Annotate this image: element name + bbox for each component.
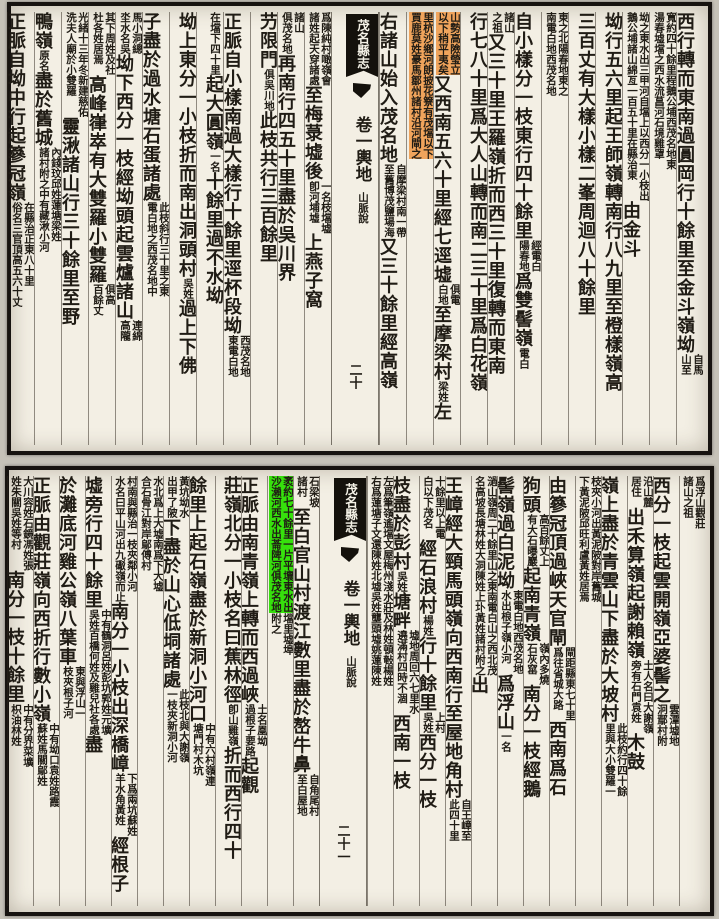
interlinear-annotation: 自角尾村至白屋地 — [295, 774, 319, 816]
text-column: 里杭沙鄉河朗披花簝有茂壋以下買鹿莫姓豪馬鄒州諸村沿河閘之 — [406, 12, 433, 445]
section-label: 山脈說 — [344, 656, 356, 688]
annotation-line: 上村 — [433, 712, 445, 733]
column-main-text: 狗頭 — [523, 476, 541, 514]
annotation-line: 吳姓百橋何姓及雞兒社各處 — [87, 609, 99, 735]
column-main-text: 出 — [471, 676, 489, 695]
annotation-line: 水北爲上大墟南爲下大墟 — [151, 476, 163, 592]
interlinear-annotation: 楊姓 — [421, 615, 433, 636]
annotation-line: 經電白 — [529, 240, 541, 272]
column-main-text: 正脈由南青嶺上轉而西過峽 — [241, 476, 259, 704]
annotation-line: 西茂名地 — [238, 335, 250, 377]
column-main-text: 子盡於過水塘石蛋諸處 — [142, 12, 161, 202]
interlinear-annotation: 枝夾小河出黃泥陂對岸舊城下黃泥陂邱旺利盧黃姓居焉 — [577, 476, 601, 602]
annotation-line: 梁姓 — [436, 381, 448, 402]
annotation-line: 至白屋地 — [295, 774, 307, 816]
text-column: 石梁坡諸村至白官山村渡江數里盡於嶅牛鼻自角尾村至白屋地 — [293, 476, 319, 906]
annotation-line: 雲潭墟地 — [667, 704, 679, 746]
text-column: 諸山俱茂名地再南行四五十里盡於吳川界 — [277, 12, 304, 445]
interlinear-annotation: 爲浮山觀莊諸山之祖 — [681, 476, 705, 529]
interlinear-annotation: 中有分界菜壙枳油林姓 — [9, 704, 33, 767]
scanned-page-bottom: 爲浮山觀莊諸山之祖西分一枝起雲開嶺亞婆髻之雲潭墟地泂鄢村附沿山麓居住出禾算嶺起謝… — [5, 466, 714, 916]
annotation-line: 山至 — [679, 354, 691, 375]
recto-half: 西行轉而東南過圓岡行十餘里至金斗嶺坳自馬山至寬約四十餘里程鵝公埔西茂名地東湯春墟… — [379, 12, 703, 445]
annotation-line: 內錢玟邱姓蓮塘梁姓 — [49, 147, 61, 252]
interlinear-annotation: 水北爲上大墟南爲下大墟合石骨江對岸鄔傅村 — [139, 476, 163, 592]
column-main-text: 由金斗 — [622, 201, 641, 258]
interlinear-annotation: 俱吳川地 — [262, 69, 274, 111]
interlinear-annotation: 一名 — [208, 151, 220, 172]
annotation-line: 吳姓 — [421, 712, 433, 733]
annotation-line: 爲浮山觀莊 — [693, 476, 705, 529]
annotation-line: 山勢高險瑩立 — [448, 12, 460, 75]
interlinear-annotation: 原名 — [37, 50, 49, 71]
text-column: 十餘里以上電白以下茂名經石浪村楊姓行十餘里上村吳姓西分一枝 — [419, 476, 445, 906]
annotation-line: 一名 — [499, 731, 511, 752]
annotation-line: 過根子要路 — [243, 704, 255, 757]
annotation-line: 姓朱關吳姓等村 — [9, 476, 21, 571]
annotation-line: 爲陳純村噉嶺會 — [319, 12, 331, 86]
interlinear-annotation: 濄山嶺周二十餘里山之東南電白山之西北茂名高坡長塘林姓大洞陳姓上圤黃姓諸村附之 — [473, 476, 497, 676]
annotation-line: 光緒十三年冬新建慈佑 — [76, 12, 88, 117]
text-column: 大川容姓石鏡馮姓張姓朱關吳姓等村南分一枝十餘里中有分界菜壙枳油林姓 — [7, 476, 33, 906]
column-main-text: 盡 — [85, 735, 103, 754]
column-main-text: 塘畔 — [393, 592, 411, 630]
annotation-line: 白以下茂名 — [421, 476, 433, 539]
annotation-line: 旁有石門袁姓 — [629, 660, 641, 734]
annotation-line: 俱高 — [103, 284, 115, 316]
column-main-text: 墟旁行四十餘里 — [85, 476, 103, 609]
column-main-text: 又三十餘里經高嶺 — [379, 238, 398, 390]
text-column: 諸山之祖又三十里王羅嶺折而西三十里復轉而東南 — [487, 12, 514, 445]
text-column: 由篸冠頂過峽天官閘閘距縣東七十里爲往省城大路西南爲石 — [549, 476, 575, 906]
column-main-text: 右諸山始入茂名地 — [379, 12, 398, 164]
text-column: 嶺上盡於青雲山下盡於大坡村此枝約行四十餘里與大小雙羅一 — [601, 476, 627, 906]
interlinear-annotation: 墟地周回六七里水遶滿村四時不涸 — [395, 630, 419, 714]
annotation-line: 爲往省城大路 — [551, 647, 563, 721]
annotation-line: 杜各姓居焉 — [91, 12, 103, 75]
annotation-line: 居住 — [629, 476, 641, 508]
interlinear-annotation: 俱高百餘丈 — [91, 284, 115, 316]
annotation-line: 諸姓起天穿諸處 — [307, 12, 319, 86]
annotation-line: 右爲蓮塘子文還陳姓北墟吳姓壟頭墟姚蓮陳姓 — [369, 476, 381, 686]
annotation-line: 沙瀨河西水出菕陴河俱茂名地 — [269, 476, 281, 613]
interlinear-annotation: 雲潭墟地泂鄢村附 — [655, 704, 679, 746]
column-main-text: 十餘里過不水坳 — [204, 172, 223, 305]
text-column: 山勢高險瑩立以下稍平夷矣又西南五六十里經七逕墟俱電白地至摩梁村梁姓左 — [433, 12, 460, 445]
annotation-line: 中有六村嶺連 — [203, 723, 215, 786]
text-column: 爲浮山觀莊諸山之祖 — [679, 476, 705, 906]
annotation-line: 寬約四十餘里程鵝公埔西茂名地東 — [664, 12, 676, 170]
text-column: 袤約七十餘里一片平壤東水出沙瀨河西水出菕陴河俱茂名地壋里墟埠附之 — [267, 476, 293, 906]
section-label: 山脈說 — [356, 192, 368, 224]
interlinear-annotation: 自王嶂至此四十里 — [447, 799, 471, 841]
annotation-line: 一枝夾新洞小河 — [165, 689, 177, 763]
interlinear-annotation: 土人名曰大謝嶺旁有石門袁姓 — [629, 660, 653, 734]
interlinear-annotation: 馬小洞總坔水名吳 — [118, 12, 142, 54]
interlinear-annotation: 諸山之祖 — [490, 12, 514, 33]
annotation-line: 名高坡長塘林姓大洞陳姓上圤黃姓諸村附之 — [473, 476, 485, 676]
annotation-line: 自王嶂至 — [459, 799, 471, 841]
annotation-line: 下黃泥陂邱旺利盧黃姓居焉 — [577, 476, 589, 602]
annotation-line: 石梁坡 — [307, 476, 319, 508]
column-main-text: 至白官山村渡江數里盡於嶅牛鼻 — [293, 508, 311, 774]
page-number: 二十一 — [334, 824, 353, 863]
column-main-text: 此枝共行三百餘里 — [258, 111, 277, 263]
annotation-line: 吳姓 — [395, 571, 407, 592]
interlinear-annotation: 內錢玟邱姓蓮塘梁姓諸村附之中有藏湫小河 — [37, 147, 61, 252]
column-main-text: 坳行五六里起王師嶺轉南行八九里至橙樣嶺高 — [603, 12, 622, 392]
text-column: 爲陳純村噉嶺會諸姓起天穿諸處至梅菉墟後一名枝壋墟卽河埔墟上燕子窩 — [304, 12, 331, 445]
text-column: 寬約四十餘里程鵝公埔西茂名地東湯春墟壋之西水流菖河石境雞罩 — [649, 12, 676, 445]
text-column: 自小樣分一枝東行四十餘里經電白陽春地爲雙髻嶺電白 — [514, 12, 541, 445]
annotation-line: 黃坑坳水 — [177, 476, 189, 518]
text-column: 在壋下四十里起大圓嶺一名十餘里過不水坳 — [196, 12, 223, 445]
annotation-line: 閘距縣東七十里 — [563, 647, 575, 721]
annotation-line: 楊姓 — [421, 615, 433, 636]
annotation-line: 東與浮山一 — [73, 666, 85, 719]
annotation-line: 東電白地 — [226, 335, 238, 377]
annotation-line: 諸山之祖 — [681, 476, 693, 529]
text-column: 西行轉而東南過圓岡行十餘里至金斗嶺坳自馬山至 — [676, 12, 703, 445]
column-main-text: 爲浮山 — [497, 674, 515, 731]
column-main-text: 出禾算嶺起謝賴嶺 — [627, 508, 645, 660]
text-column: 墟旁行四十餘里中有鶴洞呂姓彭坑郭姓元壙吳姓百橋何姓及雞兒社各處盡 — [85, 476, 111, 906]
annotation-line: 里與大小雙羅一 — [603, 723, 615, 797]
column-main-text: 高峰嵂崒有大雙羅小雙羅 — [88, 75, 107, 284]
interlinear-annotation: 一名 — [499, 731, 511, 752]
annotation-line: 電白地之西茂名地中 — [145, 202, 157, 297]
column-main-text: 西南爲石 — [549, 721, 567, 797]
annotation-line: 諸村 — [295, 476, 307, 508]
interlinear-annotation: 高百餘丈上有大石曝巖 — [525, 514, 549, 567]
interlinear-annotation: 在縣治正東八十里俗名三官頂高五六十丈 — [10, 202, 34, 307]
annotation-line: 水名曰平山河出九礟嶺而止 — [113, 476, 125, 602]
interlinear-annotation: 閘距縣東七十里爲往省城大路 — [551, 647, 575, 721]
text-column: 正脈自小樣南過大樣行十餘里逕杯段坳西茂名地東電白地 — [223, 12, 250, 445]
column-main-text: 下盡於山心低垌諸處 — [163, 518, 181, 689]
interlinear-annotation: 西茂名地東電白地 — [226, 335, 250, 377]
annotation-line: 濄山嶺周二十餘里山之東南電白山之西北茂 — [485, 476, 497, 676]
text-column: 鴨嶺原名盡於舊城內錢玟邱姓蓮塘梁姓諸村附之中有藏湫小河 — [34, 12, 61, 445]
text-column: 沿山麓居住出禾算嶺起謝賴嶺土人名曰大謝嶺旁有石門袁姓木鼓 — [627, 476, 653, 906]
annotation-line: 此枝北與大謝嶺 — [177, 689, 189, 763]
column-main-text: 至摩梁村 — [433, 305, 452, 381]
annotation-line: 泂鄢村附 — [655, 704, 667, 746]
column-main-text: 王嶂經大頸馬頭嶺向西南行至屋地角村 — [445, 476, 463, 799]
annotation-line: 坔水名吳 — [118, 12, 130, 54]
interlinear-annotation: 中有鶴洞呂姓彭坑郭姓元壙吳姓百橋何姓及雞兒社各處 — [87, 609, 111, 735]
text-column: 狗頭高百餘丈上有大石曝巖起南青嶺嶺內多燒石灰窰南分一枝經鵝 — [523, 476, 549, 906]
column-main-text: 木鼓 — [627, 733, 645, 771]
annotation-line: 袤約七十餘里一片平壤東水出 — [281, 476, 293, 613]
annotation-line: 俱吳川地 — [262, 69, 274, 111]
column-main-text: 上燕子窩 — [304, 233, 323, 309]
annotation-line: 在壋下四十里 — [208, 12, 220, 75]
text-column: 坳上東分一小枝折而南出洞頭村吳姓過上下佛 — [169, 12, 196, 445]
interlinear-annotation: 十餘里以上電白以下茂名 — [421, 476, 445, 539]
annotation-line: 嶺內多燒 — [537, 643, 549, 685]
column-main-text: 爲雙髻嶺 — [514, 272, 533, 348]
annotation-line: 吳姓 — [181, 278, 193, 299]
interlinear-annotation: 電白 — [517, 348, 529, 369]
annotation-line: 村南與縣治一枝夾鄰小河 — [125, 476, 137, 602]
interlinear-annotation: 光緒十三年冬新建慈佑洗夫人廟於小雙羅 — [64, 12, 88, 117]
column-main-text: 餘里上起石嶺盡於新洞小河口 — [189, 476, 207, 723]
annotation-line: 陽春地 — [517, 240, 529, 272]
annotation-line: 諸山 — [292, 12, 304, 54]
interlinear-annotation: 寬約四十餘里程鵝公埔西茂名地東湯春墟壋之西水流菖河石境雞罩 — [652, 12, 676, 170]
annotation-line: 買鹿莫姓豪馬鄒州諸村沿河閘之 — [409, 12, 421, 159]
annotation-line: 附之 — [269, 613, 281, 655]
annotation-line: 下爲兩坑蘇姓 — [125, 773, 137, 836]
text-column: 西分一枝起雲開嶺亞婆髻之雲潭墟地泂鄢村附 — [653, 476, 679, 906]
annotation-line: 南電白地西茂名地 — [544, 12, 556, 96]
column-main-text: 正脈由觀莊嶺向西折行數小嶺 — [33, 476, 51, 723]
column-main-text: 經根子 — [111, 836, 129, 893]
interlinear-annotation: 其下周姓及社杜各姓居焉 — [91, 12, 115, 75]
annotation-line: 諸村附之中有藏湫小河 — [37, 147, 49, 252]
interlinear-annotation: 黃坑坳水出甲了陂 — [165, 476, 189, 518]
text-column: 東之北陽春地東之南電白地西茂名地 — [541, 12, 568, 445]
column-main-text: 又三十里王羅嶺折而西三十里復轉而東南 — [487, 33, 506, 375]
annotation-line: 洗夫人廟於小雙羅 — [64, 12, 76, 117]
interlinear-annotation: 左爲筆嶺遙壋文屋梅州淺水莊及林姓頓㪑楊姓右爲蓮塘子文還陳姓北墟吳姓壟頭墟姚蓮陳姓 — [369, 476, 393, 686]
text-column: 餘里上起石嶺盡於新洞小河口中有六村嶺連塘門村木坑 — [189, 476, 215, 906]
interlinear-annotation: 自摩梁村南一帶至舊博茂鹽場海 — [382, 164, 406, 238]
column-main-text: 又西南五六十里經七逕墟 — [433, 75, 452, 284]
text-column: 三百丈有大樣小樣二峯周迴八十餘里 — [568, 12, 595, 445]
column-main-text: 南分一枝經鵝 — [523, 685, 541, 799]
interlinear-annotation: 東與浮山一枝夾根子河 — [61, 666, 85, 719]
text-column: 坳之東水出三甲河自壋上以西分一小枝出鵝公埔諸山綿亙一百五十里在縣治東由金斗 — [622, 12, 649, 445]
annotation-line: 俱茂名地 — [280, 12, 292, 54]
annotation-line: 卽山雞嶺 — [226, 704, 238, 746]
annotation-line: 俱電 — [448, 284, 460, 305]
fishtail-mark-icon — [341, 547, 359, 562]
text-column: 行七八十里爲大人山轉而南二三十里爲白花嶺 — [460, 12, 487, 445]
interlinear-annotation: 在壋下四十里 — [208, 12, 220, 75]
interlinear-annotation: 一名枝壋墟卽河埔墟 — [307, 181, 331, 234]
annotation-line: 十餘里以上電 — [433, 476, 445, 539]
annotation-line: 沿山麓 — [641, 476, 653, 508]
annotation-line: 在縣治正東八十里 — [22, 202, 34, 307]
column-main-text: 靈湫諸山行三十餘里至野 — [61, 117, 80, 326]
column-main-text: 鴨嶺 — [34, 12, 53, 50]
annotation-line: 百餘丈 — [91, 284, 103, 316]
annotation-line: 一名 — [208, 151, 220, 172]
interlinear-annotation: 俱電白地 — [436, 284, 460, 305]
annotation-line: 土名凰坳 — [255, 704, 267, 757]
annotation-line: 壋里墟埠 — [281, 613, 293, 655]
interlinear-annotation: 諸山俱茂名地 — [280, 12, 304, 54]
interlinear-annotation: 村南與縣治一枝夾鄰小河水名曰平山河出九礟嶺而止 — [113, 476, 137, 602]
interlinear-annotation: 下爲兩坑蘇姓羊水角黃姓 — [113, 773, 137, 836]
interlinear-annotation: 坳之東水出三甲河自壋上以西分一小枝出鵝公埔諸山綿亙一百五十里在縣治東 — [625, 12, 649, 201]
annotation-line: 出甲了陂 — [165, 476, 177, 518]
verso-half: 爲陳純村噉嶺會諸姓起天穿諸處至梅菉墟後一名枝壋墟卽河埔墟上燕子窩諸山俱茂名地再南… — [7, 12, 331, 445]
annotation-line: 中有坳口袁姓路霞 — [47, 723, 59, 807]
highlighted-annotation: 山勢高險瑩立以下稍平夷矣 — [436, 12, 460, 75]
column-main-text: 南分一小枝出深橋嶂 — [111, 602, 129, 773]
text-column: 於灘底河雞公嶺八葉車東與浮山一枝夾根子河 — [59, 476, 85, 906]
interlinear-annotation: 卽山雞嶺 — [226, 704, 238, 746]
highlighted-annotation: 里杭沙鄉河朗披花簝有茂壋以下買鹿莫姓豪馬鄒州諸村沿河閘之 — [409, 12, 433, 159]
column-main-text: 折而西行四十 — [222, 746, 241, 860]
text-column: 黃坑坳水出甲了陂下盡於山心低垌諸處此枝北與大謝嶺一枝夾新洞小河 — [163, 476, 189, 906]
page-content: 西行轉而東南過圓岡行十餘里至金斗嶺坳自馬山至寬約四十餘里程鵝公埔西茂名地東湯春墟… — [16, 12, 703, 445]
annotation-line: 一名枝壋墟 — [319, 181, 331, 234]
juan-label: 卷一輿地 — [353, 116, 371, 182]
interlinear-annotation: 梁姓 — [436, 381, 448, 402]
annotation-line: 高隴 — [118, 320, 130, 341]
interlinear-annotation: 東電白地西茂名地水出桹子嶺小河 — [499, 590, 523, 674]
interlinear-annotation: 沿山麓居住 — [629, 476, 653, 508]
annotation-line: 遶滿村四時不涸 — [395, 630, 407, 714]
scanned-page-top: 西行轉而東南過圓岡行十餘里至金斗嶺坳自馬山至寬約四十餘里程鵝公埔西茂名地東湯春墟… — [7, 2, 712, 455]
annotation-line: 東之北陽春地東之 — [556, 12, 568, 96]
interlinear-annotation: 上村吳姓 — [421, 712, 445, 733]
column-main-text: 於灘底河雞公嶺八葉車 — [59, 476, 77, 666]
page-number: 二十 — [346, 363, 365, 389]
column-main-text: 至梅菉墟後 — [304, 86, 323, 181]
recto-half: 爲浮山觀莊諸山之祖西分一枝起雲開嶺亞婆髻之雲潭墟地泂鄢村附沿山麓居住出禾算嶺起謝… — [367, 476, 705, 906]
annotation-line: 塘門村木坑 — [191, 723, 203, 786]
text-column: 髻嶺過白泥坳東電白地西茂名地水出桹子嶺小河爲浮山一名 — [497, 476, 523, 906]
folding-column: 茂名縣志 卷一輿地 山脈說 二十一 — [319, 476, 367, 906]
column-main-text: 莊嶺北分一小枝名曰蕉林徑 — [222, 476, 241, 704]
interlinear-annotation: 石梁坡諸村 — [295, 476, 319, 508]
column-main-text: 坳上東分一小枝折而南出洞頭村 — [177, 12, 196, 278]
interlinear-annotation: 吳姓 — [181, 278, 193, 299]
interlinear-annotation: 中有坳口袁姓路霞蘇姓馬關鄔姓 — [35, 723, 59, 807]
interlinear-annotation: 吳姓 — [395, 571, 407, 592]
text-column: 正脈自坳中行起篸冠嶺在縣治正東八十里俗名三官頂高五六十丈 — [7, 12, 34, 445]
interlinear-annotation: 大川容姓石鏡馮姓張姓朱關吳姓等村 — [9, 476, 33, 571]
column-main-text: 西南一枝 — [393, 714, 411, 790]
text-column: 子盡於過水塘石蛋諸處此枝斜行三十里之東電白地之西茂名地中 — [142, 12, 169, 445]
annotation-line: 里杭沙鄉河朗披花簝有茂壋以下 — [421, 12, 433, 159]
annotation-line: 坳之東水出三甲河自壋上以西分一小枝出 — [637, 12, 649, 201]
interlinear-annotation: 連綿高隴 — [118, 320, 142, 341]
annotation-line: 合石骨江對岸鄔傅村 — [139, 476, 151, 592]
interlinear-annotation: 土名凰坳過根子要路 — [243, 704, 267, 757]
column-main-text: 起南青嶺 — [523, 567, 541, 643]
column-main-text: 西分一枝起雲開嶺亞婆髻之 — [653, 476, 671, 704]
text-column: 其下周姓及社杜各姓居焉高峰嵂崒有大雙羅小雙羅俱高百餘丈 — [88, 12, 115, 445]
column-main-text: 經石浪村 — [419, 539, 437, 615]
text-column: 左爲筆嶺遙壋文屋梅州淺水莊及林姓頓㪑楊姓右爲蓮塘子文還陳姓北墟吳姓壟頭墟姚蓮陳姓 — [367, 476, 393, 906]
annotation-line: 自摩梁村南一帶 — [394, 164, 406, 238]
text-column: 馬小洞總坔水名吳坳下西分一枝經坳頭起雲爐諸山連綿高隴 — [115, 12, 142, 445]
text-column: 光緒十三年冬新建慈佑洗夫人廟於小雙羅靈湫諸山行三十餘里至野 — [61, 12, 88, 445]
column-main-text: 起大圓嶺 — [204, 75, 223, 151]
annotation-line: 墟地周回六七里水 — [407, 630, 419, 714]
column-main-text: 起觀 — [241, 757, 259, 795]
annotation-line: 中有鶴洞呂姓彭坑郭姓元壙 — [99, 609, 111, 735]
column-main-text: 正脈自坳中行起篸冠嶺 — [7, 12, 26, 202]
column-main-text: 坳下西分一枝經坳頭起雲爐諸山 — [115, 54, 134, 320]
column-main-text: 正脈自小樣南過大樣行十餘里逕杯段坳 — [223, 12, 242, 335]
annotation-line: 左爲筆嶺遙壋文屋梅州淺水莊及林姓頓㪑楊姓 — [381, 476, 393, 686]
annotation-line: 枝夾根子河 — [61, 666, 73, 719]
interlinear-annotation: 自馬山至 — [679, 354, 703, 375]
text-column: 莊嶺北分一小枝名曰蕉林徑卽山雞嶺折而西行四十 — [215, 476, 241, 906]
text-column: 村南與縣治一枝夾鄰小河水名曰平山河出九礟嶺而止南分一小枝出深橋嶂下爲兩坑蘇姓羊水… — [111, 476, 137, 906]
annotation-line: 有大石曝巖 — [525, 514, 537, 567]
annotation-line: 此枝約行四十餘 — [615, 723, 627, 797]
column-main-text: 枝盡於彭村 — [393, 476, 411, 571]
interlinear-annotation: 中有六村嶺連塘門村木坑 — [191, 723, 215, 786]
annotation-line: 蘇姓馬關鄔姓 — [35, 723, 47, 807]
verso-half: 石梁坡諸村至白官山村渡江數里盡於嶅牛鼻自角尾村至白屋地袤約七十餘里一片平壤東水出… — [7, 476, 319, 906]
text-column: 右諸山始入茂名地自摩梁村南一帶至舊博茂鹽場海又三十餘里經高嶺一名稿高石下乃平吉墟… — [379, 12, 406, 445]
column-main-text: 嶺上盡於青雲山下盡於大坡村 — [601, 476, 619, 723]
column-main-text: 西行轉而東南過圓岡行十餘里至金斗嶺坳 — [676, 12, 695, 354]
text-column: 枝盡於彭村吳姓塘畔墟地周回六七里水遶滿村四時不涸西南一枝 — [393, 476, 419, 906]
book-title-tab: 茂名縣志 — [334, 478, 366, 541]
annotation-line: 之祖 — [490, 12, 502, 33]
column-main-text: 由篸冠頂過峽天官閘 — [549, 476, 567, 647]
column-main-text: 南分一枝十餘里 — [7, 571, 25, 704]
column-main-text: 西分一枝 — [419, 733, 437, 809]
annotation-line: 俗名三官頂高五六十丈 — [10, 202, 22, 307]
annotation-line: 卽河埔墟 — [307, 181, 319, 234]
annotation-line: 諸山 — [502, 12, 514, 33]
interlinear-annotation: 經電白陽春地 — [517, 240, 541, 272]
annotation-line: 此四十里 — [447, 799, 459, 841]
fishtail-mark-icon — [353, 83, 371, 98]
annotation-line: 羊水角黃姓 — [113, 773, 125, 836]
annotation-line: 電白 — [517, 348, 529, 369]
text-column: 正脈由觀莊嶺向西折行數小嶺中有坳口袁姓路霞蘇姓馬關鄔姓 — [33, 476, 59, 906]
annotation-line: 原名 — [37, 50, 49, 71]
annotation-line: 土人名曰大謝嶺 — [641, 660, 653, 734]
column-main-text: 芀限門 — [258, 12, 277, 69]
annotation-line: 自角尾村 — [307, 774, 319, 816]
interlinear-annotation: 嶺內多燒石灰窰 — [525, 643, 549, 685]
annotation-line: 馬小洞總 — [130, 12, 142, 54]
folding-column: 茂名縣志 卷一輿地 山脈說 二十 — [331, 12, 379, 445]
annotation-line: 其下周姓及社 — [103, 12, 115, 75]
text-column: 濄山嶺周二十餘里山之東南電白山之西北茂名高坡長塘林姓大洞陳姓上圤黃姓諸村附之出 — [471, 476, 497, 906]
column-main-text: 自小樣分一枝東行四十餘里 — [514, 12, 533, 240]
column-main-text: 再南行四五十里盡於吳川界 — [277, 54, 296, 282]
interlinear-annotation: 爲陳純村噉嶺會諸姓起天穿諸處 — [307, 12, 331, 86]
column-main-text: 過上下佛 — [177, 299, 196, 375]
annotation-line: 至舊博茂鹽場海 — [382, 164, 394, 238]
interlinear-annotation: 此枝北與大謝嶺一枝夾新洞小河 — [165, 689, 189, 763]
text-column: 正脈由南青嶺上轉而西過峽土名凰坳過根子要路起觀 — [241, 476, 267, 906]
annotation-line: 鵝公埔諸山綿亙一百五十里在縣治東 — [625, 12, 637, 201]
juan-label: 卷一輿地 — [341, 580, 359, 646]
annotation-line: 自馬 — [691, 354, 703, 375]
annotation-line: 白地 — [436, 284, 448, 305]
annotation-line: 連綿 — [130, 320, 142, 341]
column-main-text: 盡於舊城 — [34, 71, 53, 147]
annotation-line: 東電白地西茂名地 — [511, 590, 523, 674]
column-main-text: 行七八十里爲大人山轉而南二三十里爲白花嶺 — [468, 12, 487, 392]
annotation-line: 枝夾小河出黃泥陂對岸舊城 — [589, 476, 601, 602]
interlinear-annotation: 壋里墟埠附之 — [269, 613, 293, 655]
highlighted-annotation: 袤約七十餘里一片平壤東水出沙瀨河西水出菕陴河俱茂名地 — [269, 476, 293, 613]
annotation-line: 大川容姓石鏡馮姓張 — [21, 476, 33, 571]
annotation-line: 高百餘丈上 — [537, 514, 549, 567]
interlinear-annotation: 此枝約行四十餘里與大小雙羅一 — [603, 723, 627, 797]
annotation-line: 此枝斜行三十里之東 — [157, 202, 169, 297]
text-column: 水北爲上大墟南爲下大墟合石骨江對岸鄔傅村 — [137, 476, 163, 906]
text-column: 枝夾小河出黃泥陂對岸舊城下黃泥陂邱旺利盧黃姓居焉 — [575, 476, 601, 906]
text-column: 坳行五六里起王師嶺轉南行八九里至橙樣嶺高 — [595, 12, 622, 445]
